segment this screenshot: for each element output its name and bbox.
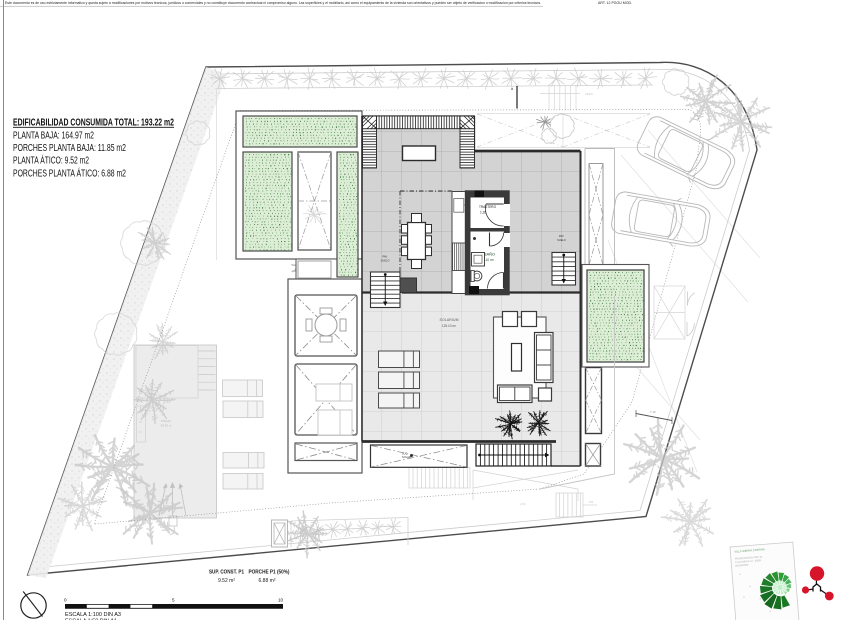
svg-text:PAV.: PAV. — [382, 255, 388, 259]
svg-text:10: 10 — [278, 598, 284, 603]
svg-text:SOLARIUM: SOLARIUM — [440, 318, 459, 322]
svg-text:TRASTERO: TRASTERO — [479, 205, 496, 209]
svg-text:SUP. CONST. P1: SUP. CONST. P1 — [209, 570, 244, 576]
svg-text:P.B.: P.B. — [589, 500, 594, 504]
svg-text:125.10 m²: 125.10 m² — [442, 324, 456, 328]
svg-text:2.80: 2.80 — [520, 502, 526, 506]
svg-text:PLANTA ÁTICO: 9.52 m2: PLANTA ÁTICO: 9.52 m2 — [13, 154, 89, 167]
svg-text:PLANTA BAJA: 164.97 m2: PLANTA BAJA: 164.97 m2 — [13, 130, 94, 141]
svg-text:P.BAJA: P.BAJA — [161, 419, 171, 423]
svg-text:SUELO: SUELO — [557, 238, 566, 242]
svg-text:PAV.: PAV. — [559, 234, 565, 238]
svg-text:SOLAR.: SOLAR. — [402, 455, 412, 459]
svg-text:93.50 m: 93.50 m — [161, 424, 172, 428]
svg-text:a: a — [511, 87, 513, 91]
svg-text:PORCHES PLANTA ÁTICO: 6.88 m2: PORCHES PLANTA ÁTICO: 6.88 m2 — [13, 166, 126, 179]
svg-text:PORCHE P1 (50%): PORCHE P1 (50%) — [249, 570, 290, 576]
svg-text:1.26: 1.26 — [480, 211, 486, 215]
svg-text:SUELO: SUELO — [381, 259, 390, 263]
svg-text:ART. 12 PGOU MOD.: ART. 12 PGOU MOD. — [598, 1, 632, 5]
svg-text:LUC.: LUC. — [402, 452, 408, 456]
svg-text:7.10: 7.10 — [650, 410, 656, 414]
svg-text:0: 0 — [64, 598, 67, 603]
svg-text:6.88 m²: 6.88 m² — [259, 578, 276, 584]
svg-text:BAÑO: BAÑO — [484, 252, 495, 257]
svg-text:PERG.: PERG. — [585, 92, 594, 96]
svg-text:Este documento es de uso estri: Este documento es de uso estrictamente i… — [5, 1, 541, 5]
svg-text:PORCHES PLANTA BAJA: 11.85 m2: PORCHES PLANTA BAJA: 11.85 m2 — [13, 143, 126, 154]
svg-text:9.52 m²: 9.52 m² — [218, 578, 235, 584]
svg-text:EDIFICABILIDAD CONSUMIDA TOTAL: EDIFICABILIDAD CONSUMIDA TOTAL: 193.22 m… — [13, 118, 174, 129]
svg-text:ESCALA 1:100 DIN A3: ESCALA 1:100 DIN A3 — [65, 612, 121, 618]
svg-text:5: 5 — [172, 598, 175, 603]
